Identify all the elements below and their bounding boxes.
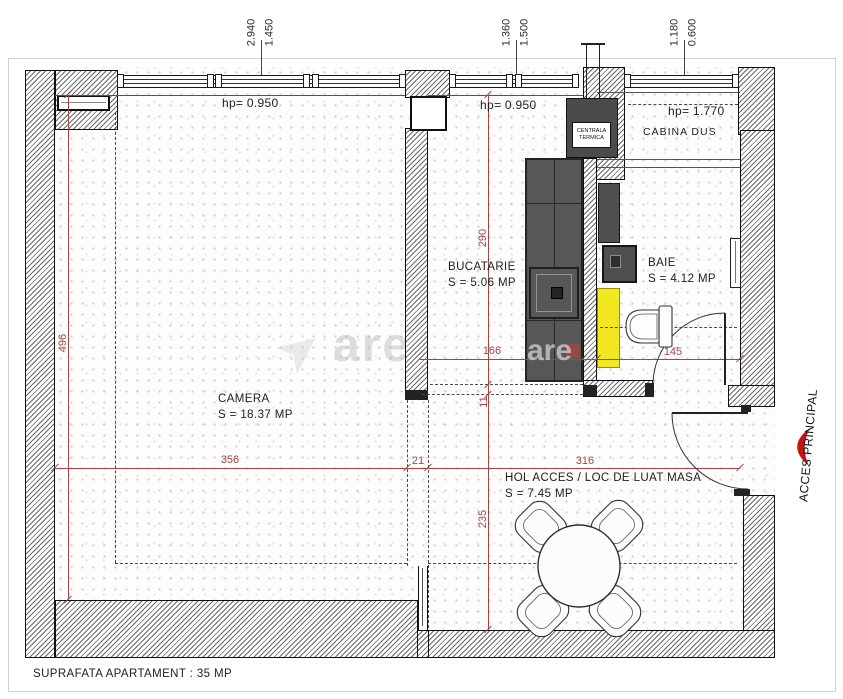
wall-slot-bottom	[418, 566, 428, 630]
boiler-label: CENTRALA TERMICA	[572, 122, 611, 148]
window-post	[624, 74, 631, 88]
wall-bath-right-step	[728, 385, 775, 407]
radiator-bath	[730, 238, 741, 288]
room-label-baie: BAIE	[648, 255, 676, 271]
window-glass	[454, 79, 574, 84]
window-mullion	[303, 74, 310, 88]
kitchen-appliance	[529, 267, 579, 319]
room-area-camera: S = 18.37 MP	[218, 407, 293, 423]
shower-partition-line	[597, 159, 740, 160]
window-shower	[625, 75, 738, 88]
window-post	[572, 74, 579, 88]
window-post	[117, 74, 124, 88]
dim-label-356: 356	[215, 454, 245, 466]
wall-cap-kitchen-bath	[583, 385, 597, 396]
jamb-entrance-top	[741, 405, 751, 412]
hp-label-camera: hp= 0.950	[222, 96, 278, 110]
hp-label-kitchen: hp= 0.950	[480, 98, 536, 112]
dim-label-1500: 1.500	[519, 10, 532, 56]
dashed-guide	[430, 384, 583, 385]
wall-left	[25, 70, 55, 658]
wall-slot-line	[422, 568, 423, 626]
wall-kitchen-bath	[583, 158, 597, 385]
wall-bottom-camera	[55, 600, 418, 658]
wall-niche-square	[410, 96, 447, 131]
room-label-camera: CAMERA	[218, 391, 270, 407]
dim-label-235: 235	[477, 501, 489, 537]
dim-label-2940: 2.940	[246, 10, 259, 56]
sink-unit-yellow	[597, 288, 620, 368]
dashed-guide	[115, 112, 116, 563]
watermark-text-small: are	[527, 334, 572, 368]
window-mullion	[312, 74, 319, 88]
dashed-axis-toilet	[600, 327, 737, 328]
room-area-bucatarie: S = 5.06 MP	[448, 275, 516, 291]
dim-label-496: 496	[57, 325, 69, 361]
jamb-entrance-bottom	[734, 489, 750, 496]
dim-label-0600: 0.600	[687, 10, 700, 56]
dashed-guide	[428, 563, 737, 564]
wall-top-right-corner	[738, 67, 775, 135]
window-glass	[122, 79, 401, 84]
wall-pillar-top	[405, 70, 450, 98]
boiler-label-line2: TERMICA	[573, 135, 610, 142]
window-post	[399, 74, 406, 88]
dim-ext-line	[261, 40, 262, 75]
dim-label-11: 11	[478, 392, 490, 412]
flue-pipe-line	[586, 44, 587, 98]
wall-bottom-hol	[428, 630, 775, 658]
window-glass	[629, 79, 734, 84]
window-mullion	[515, 74, 522, 88]
dim-label-166: 166	[477, 345, 507, 357]
dim-label-1360: 1.360	[501, 10, 514, 56]
dim-ext-line	[684, 40, 685, 75]
dim-label-145: 145	[658, 346, 688, 358]
dashed-guide	[115, 563, 407, 564]
appliance-knob	[551, 287, 563, 299]
bath-cabinet	[598, 183, 620, 243]
room-label-hol: HOL ACCES / LOC DE LUAT MASA	[505, 470, 701, 486]
room-area-hol: S = 7.45 MP	[505, 486, 573, 502]
window-mullion	[506, 74, 513, 88]
window-mullion	[215, 74, 222, 88]
flue-cap-line	[581, 43, 605, 45]
dim-label-290: 290	[477, 220, 489, 256]
sill-line-kitchen	[428, 95, 583, 96]
counter-divider	[527, 203, 581, 204]
washing-machine	[602, 245, 637, 283]
room-area-baie: S = 4.12 MP	[648, 271, 716, 287]
dim-label-1180: 1.180	[669, 10, 682, 56]
window-kitchen	[450, 75, 578, 88]
hp-label-shower: hp= 1.770	[668, 104, 724, 118]
boiler-label-line1: CENTRALA	[573, 128, 610, 135]
room-label-bucatarie: BUCATARIE	[448, 259, 516, 275]
wall-bottom-joint	[418, 630, 428, 658]
floor-plan: are ➤	[0, 0, 843, 699]
wall-right-bath	[740, 130, 775, 407]
dim-label-21: 21	[408, 455, 428, 467]
window-post	[449, 74, 456, 88]
shower-partition-line	[597, 167, 740, 168]
window-mullion	[207, 74, 214, 88]
jamb-bath-door	[645, 383, 654, 397]
dashed-guide	[407, 400, 408, 566]
footer-total-area: SUPRAFATA APARTAMENT : 35 MP	[33, 666, 232, 682]
watermark-text: are	[333, 318, 411, 373]
sill-line-shower	[597, 92, 740, 93]
dashed-guide	[422, 394, 583, 395]
dim-label-316: 316	[570, 455, 600, 467]
washing-machine-door	[610, 255, 621, 268]
window-post	[732, 74, 739, 88]
dim-ext-line	[516, 40, 517, 75]
wall-cap-partition	[405, 390, 428, 400]
flue-pipe-line	[599, 44, 600, 98]
room-label-cabina-dus: CABINA DUS	[643, 124, 717, 140]
counter-divider	[527, 320, 581, 321]
dim-line-vertical-right	[488, 95, 489, 630]
dim-line-horizontal-main	[55, 468, 740, 469]
dim-label-1450: 1.450	[264, 10, 277, 56]
window-camera	[118, 75, 405, 88]
dashed-guide	[428, 400, 429, 628]
radiator-fin-line	[735, 241, 736, 283]
